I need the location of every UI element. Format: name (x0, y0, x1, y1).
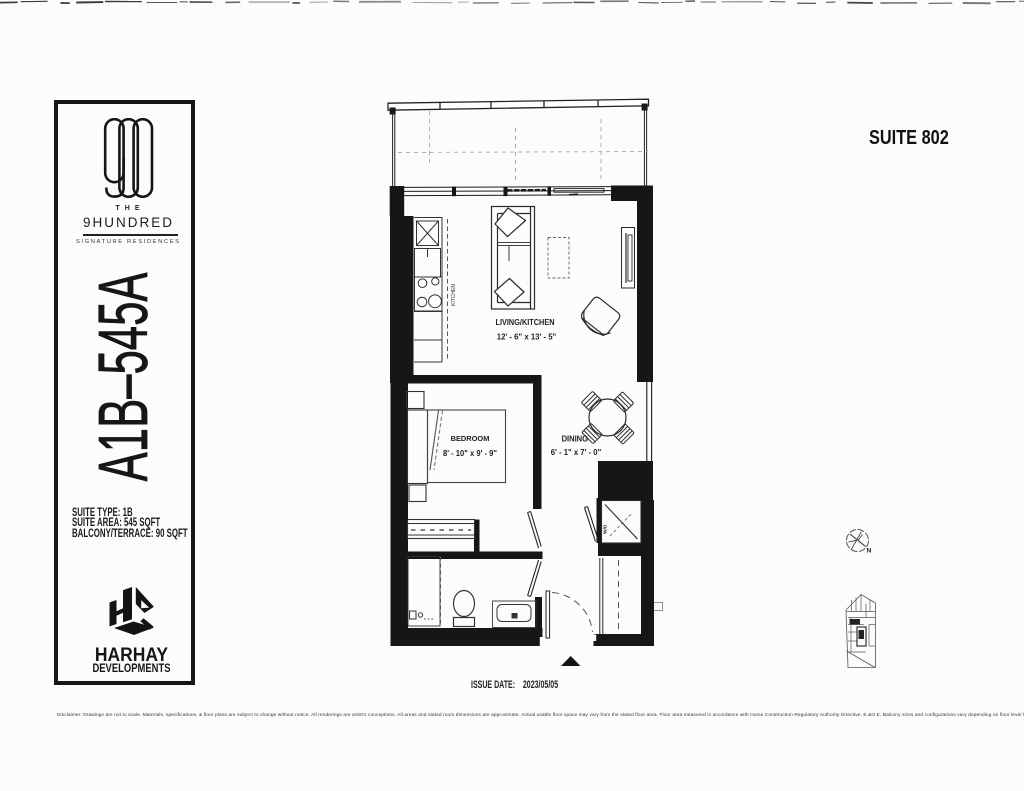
svg-text:W/D: W/D (603, 524, 609, 534)
svg-text:KITCHEN: KITCHEN (451, 284, 457, 306)
svg-text:BEDROOM: BEDROOM (451, 434, 490, 443)
svg-text:LIVING/KITCHEN: LIVING/KITCHEN (496, 317, 555, 327)
svg-text:DINING: DINING (562, 434, 588, 444)
svg-text:N: N (867, 548, 872, 555)
svg-text:8' - 10" x 9' - 9": 8' - 10" x 9' - 9" (443, 449, 497, 458)
svg-text:12' - 6" x 13' - 5": 12' - 6" x 13' - 5" (497, 331, 557, 341)
svg-text:6' - 1" x 7' - 0": 6' - 1" x 7' - 0" (551, 448, 602, 457)
